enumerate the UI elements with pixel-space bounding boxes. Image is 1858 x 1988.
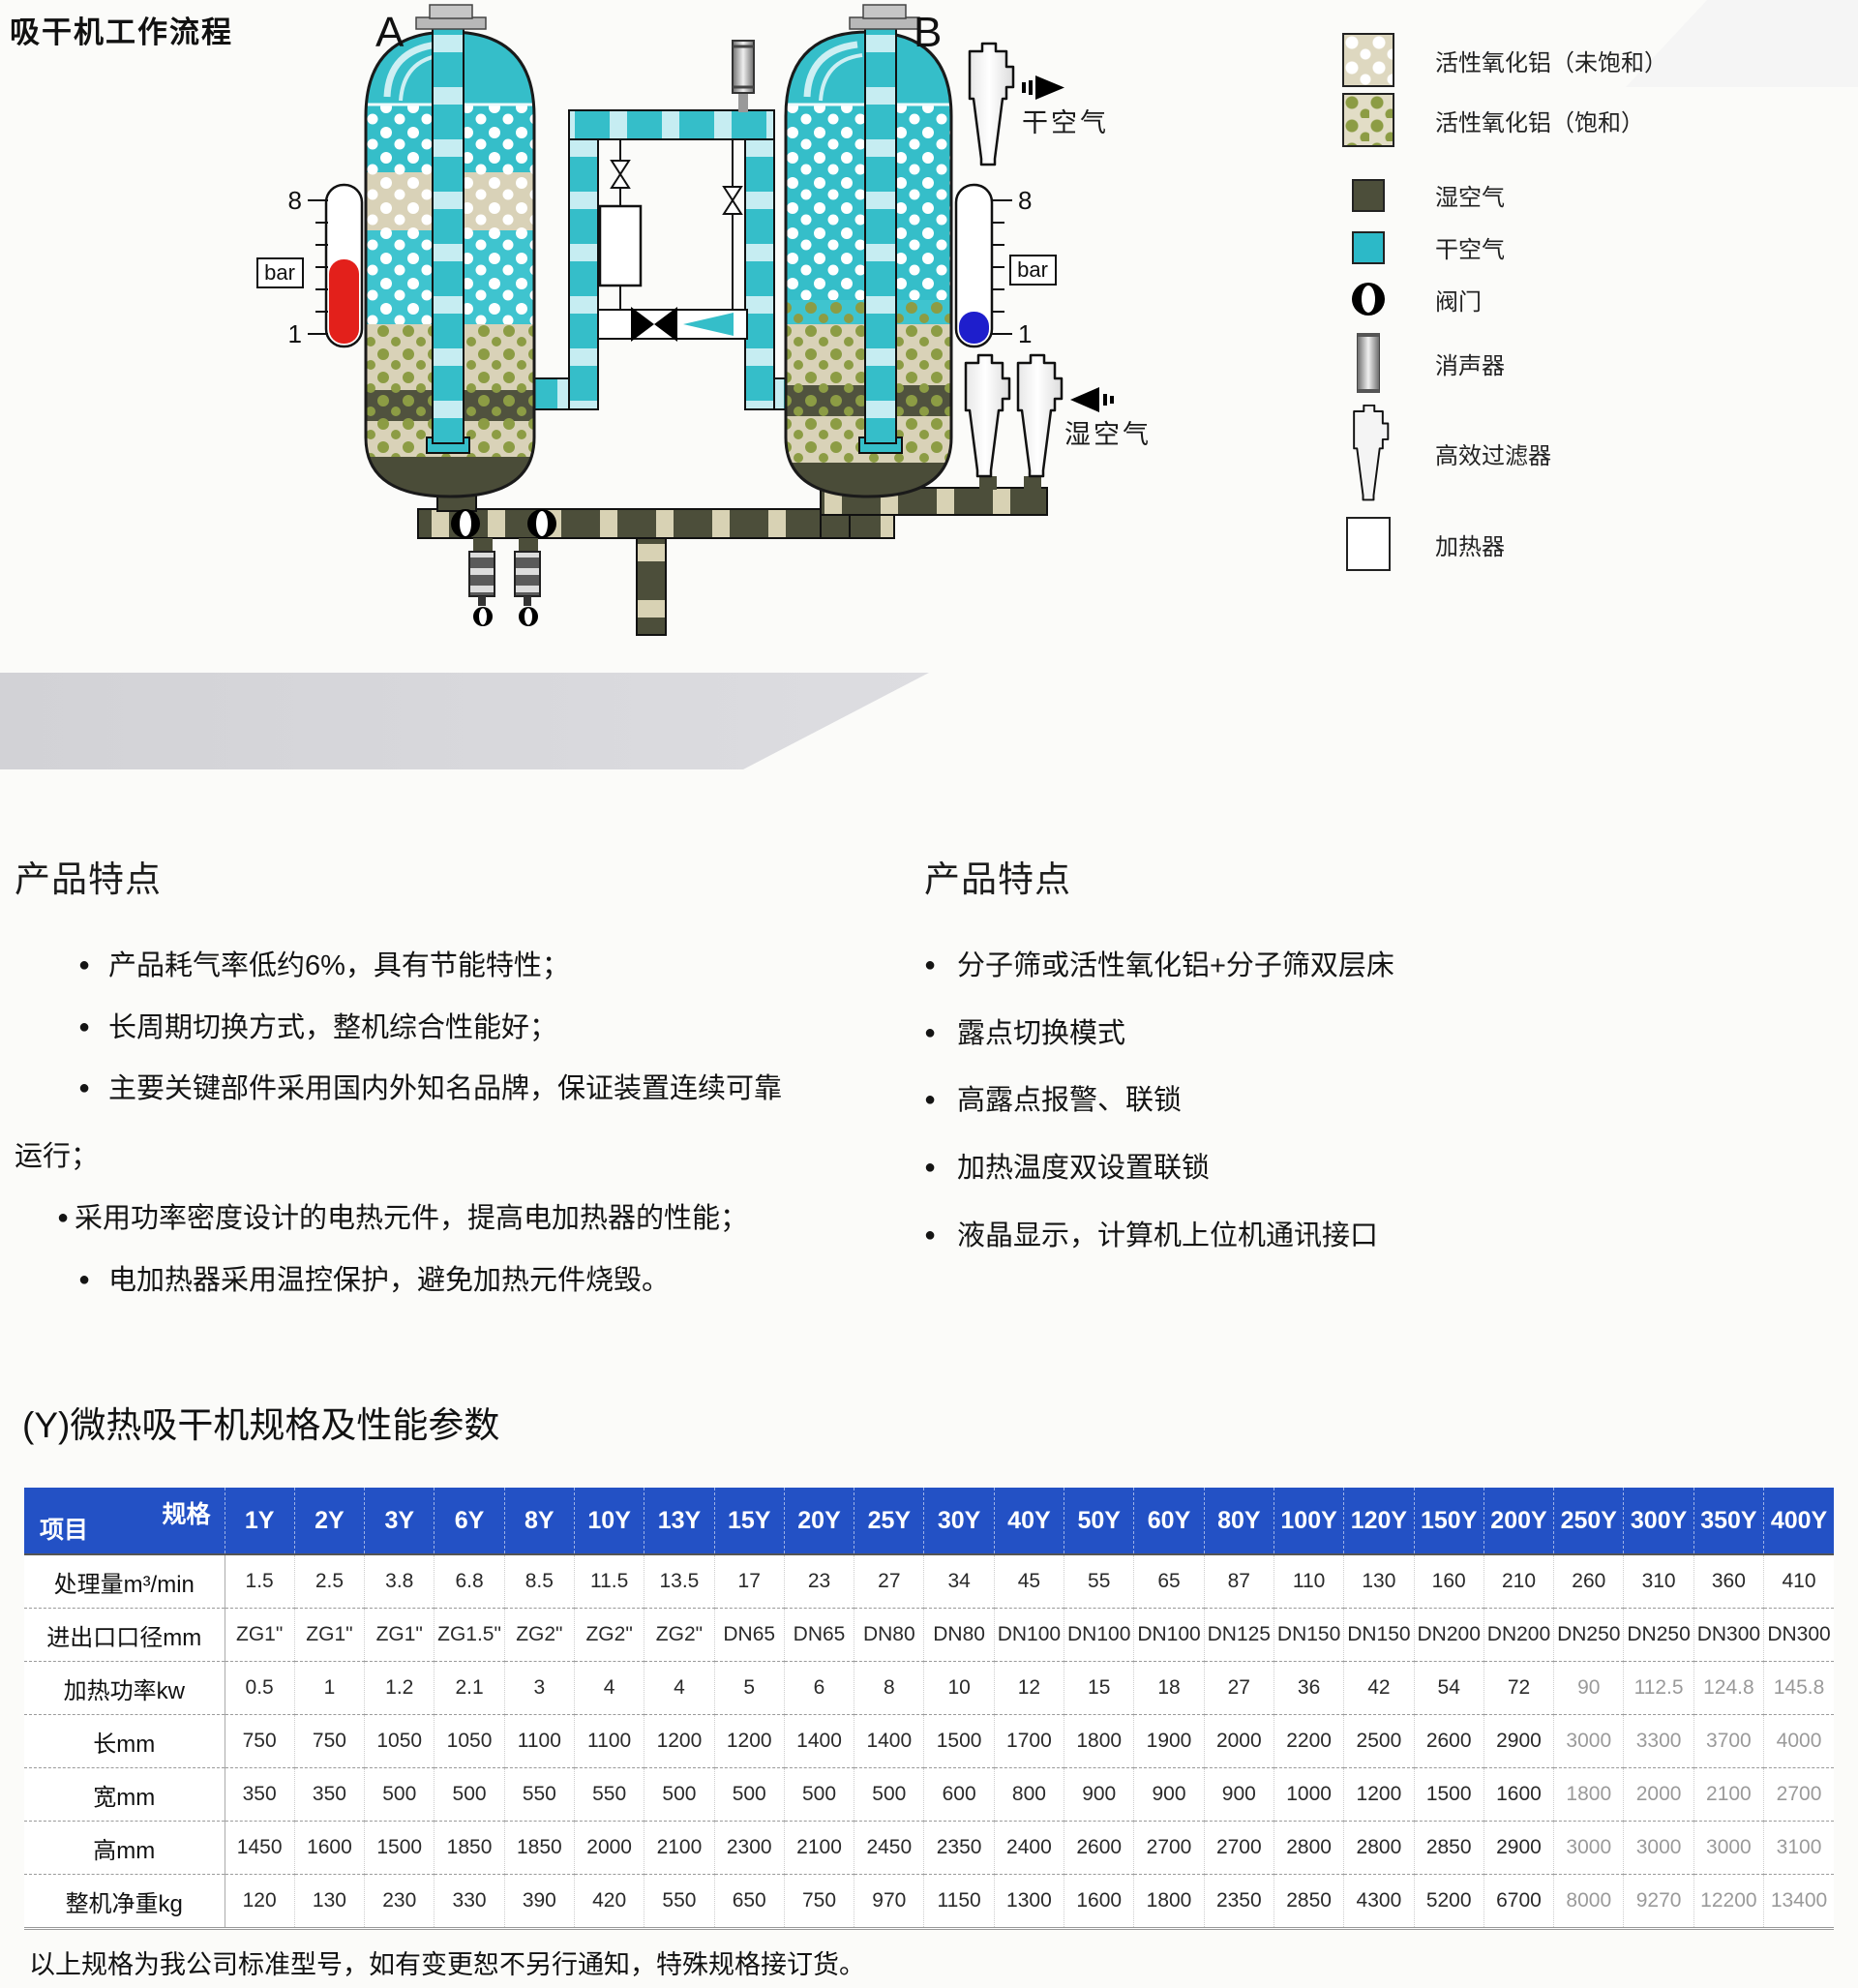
table-cell: 550 [644, 1875, 714, 1929]
muffler-icon [1357, 333, 1380, 393]
table-cell: 1200 [714, 1715, 784, 1768]
table-cell: 900 [1204, 1768, 1274, 1822]
table-cell: 3100 [1764, 1822, 1834, 1875]
table-cell: 17 [714, 1554, 784, 1609]
table-cell: ZG1" [294, 1609, 364, 1662]
table-cell: DN200 [1483, 1609, 1553, 1662]
table-cell: 2900 [1483, 1715, 1553, 1768]
table-row: 整机净重kg1201302303303904205506507509701150… [24, 1875, 1834, 1929]
filter-icon [1347, 405, 1390, 501]
table-row: 进出口口径mmZG1"ZG1"ZG1"ZG1.5"ZG2"ZG2"ZG2"DN6… [24, 1609, 1834, 1662]
table-cell: 500 [644, 1768, 714, 1822]
bullet-icon: ● [57, 1205, 69, 1230]
column-header: 8Y [504, 1488, 574, 1554]
feature-text: 主要关键部件采用国内外知名品牌，保证装置连续可靠 [108, 1073, 782, 1104]
page: 吸干机工作流程 [0, 0, 1858, 1988]
valve-icon [1349, 281, 1388, 317]
table-cell: 550 [574, 1768, 644, 1822]
table-cell: 900 [1064, 1768, 1134, 1822]
table-cell: 350 [225, 1768, 294, 1822]
column-header: 150Y [1414, 1488, 1483, 1554]
column-header: 3Y [365, 1488, 435, 1554]
table-cell: 2800 [1274, 1822, 1343, 1875]
bullet-icon: ● [78, 1014, 90, 1039]
feature-text: 采用功率密度设计的电热元件，提高电加热器的性能； [75, 1203, 748, 1234]
decor-band-diagonal [0, 673, 929, 769]
table-cell: 800 [994, 1768, 1064, 1822]
table-cell: 2800 [1344, 1822, 1414, 1875]
table-cell: 55 [1064, 1554, 1134, 1609]
column-header: 200Y [1483, 1488, 1553, 1554]
table-cell: 1500 [924, 1715, 994, 1768]
corner-item-label: 项目 [40, 1511, 88, 1546]
legend-item: 活性氧化铝（饱和） [1340, 93, 1644, 147]
feature-text: 产品耗气率低约6%，具有节能特性； [108, 950, 570, 981]
table-cell: 6 [784, 1662, 854, 1715]
table-cell: 145.8 [1764, 1662, 1834, 1715]
table-cell: ZG1" [365, 1609, 435, 1662]
dry-air-swatch-icon [1352, 231, 1385, 264]
table-cell: DN80 [924, 1609, 994, 1662]
row-label: 进出口口径mm [24, 1609, 225, 1662]
table-cell: 1500 [1414, 1768, 1483, 1822]
table-cell: 750 [784, 1875, 854, 1929]
table-cell: 6.8 [435, 1554, 504, 1609]
heater-icon [1346, 517, 1391, 571]
table-cell: 11.5 [574, 1554, 644, 1609]
features-heading: 产品特点 [15, 850, 885, 902]
vessel-a [362, 5, 540, 501]
table-cell: DN250 [1554, 1609, 1624, 1662]
table-cell: 500 [784, 1768, 854, 1822]
feature-item: ●液晶显示，计算机上位机通讯接口 [924, 1219, 1524, 1255]
table-cell: 1900 [1134, 1715, 1204, 1768]
features-section-left: 产品特点 ●产品耗气率低约6%，具有节能特性；●长周期切换方式，整机综合性能好；… [15, 850, 885, 1324]
dry-air-arrow-icon [1022, 75, 1064, 100]
legend-item: 阀门 [1340, 281, 1482, 317]
table-cell: 750 [225, 1715, 294, 1768]
vessel-b-label: B [914, 9, 942, 56]
table-cell: 2850 [1274, 1875, 1343, 1929]
table-cell: 1800 [1064, 1715, 1134, 1768]
table-cell: DN300 [1764, 1609, 1834, 1662]
features-heading: 产品特点 [924, 850, 1524, 902]
table-cell: 36 [1274, 1662, 1343, 1715]
diagram-legend: 活性氧化铝（未饱和）活性氧化铝（饱和）湿空气干空气阀门消声器高效过滤器加热器 [1340, 0, 1785, 629]
table-cell: 87 [1204, 1554, 1274, 1609]
table-cell: 230 [365, 1875, 435, 1929]
table-cell: 650 [714, 1875, 784, 1929]
table-cell: 4 [644, 1662, 714, 1715]
table-cell: 1700 [994, 1715, 1064, 1768]
table-cell: 900 [1134, 1768, 1204, 1822]
table-row: 高mm1450160015001850185020002100230021002… [24, 1822, 1834, 1875]
feature-item: ●主要关键部件采用国内外知名品牌，保证装置连续可靠 [15, 1071, 885, 1108]
table-cell: 2700 [1764, 1768, 1834, 1822]
table-cell: DN80 [854, 1609, 924, 1662]
table-cell: 390 [504, 1875, 574, 1929]
feature-text: 分子筛或活性氧化铝+分子筛双层床 [957, 950, 1394, 981]
table-cell: 2700 [1134, 1822, 1204, 1875]
table-cell: 2.1 [435, 1662, 504, 1715]
table-cell: DN100 [1064, 1609, 1134, 1662]
bullet-icon: ● [78, 952, 90, 978]
table-cell: 2450 [854, 1822, 924, 1875]
table-cell: 1600 [1064, 1875, 1134, 1929]
table-cell: 8000 [1554, 1875, 1624, 1929]
spec-table-footnote: 以上规格为我公司标准型号，如有变更恕不另行通知，特殊规格接订货。 [29, 1943, 865, 1981]
column-header: 400Y [1764, 1488, 1834, 1554]
legend-item: 干空气 [1340, 230, 1505, 264]
table-cell: DN125 [1204, 1609, 1274, 1662]
feature-continuation: 运行； [15, 1133, 885, 1174]
wet-air-swatch-icon [1352, 179, 1385, 212]
table-cell: 750 [294, 1715, 364, 1768]
feature-text: 露点切换模式 [957, 1018, 1125, 1049]
column-header: 100Y [1274, 1488, 1343, 1554]
column-header: 60Y [1134, 1488, 1204, 1554]
features-list: ●产品耗气率低约6%，具有节能特性；●长周期切换方式，整机综合性能好；●主要关键… [15, 949, 885, 1299]
table-cell: DN200 [1414, 1609, 1483, 1662]
legend-label: 高效过滤器 [1435, 437, 1551, 470]
table-cell: 27 [854, 1554, 924, 1609]
table-row: 处理量m³/min1.52.53.86.88.511.513.517232734… [24, 1554, 1834, 1609]
table-cell: 1300 [994, 1875, 1064, 1929]
features-list: ●分子筛或活性氧化铝+分子筛双层床●露点切换模式●高露点报警、联锁●加热温度双设… [924, 949, 1524, 1254]
bullet-icon: ● [78, 1075, 90, 1100]
table-cell: 2900 [1483, 1822, 1553, 1875]
table-cell: 1850 [504, 1822, 574, 1875]
svg-text:1: 1 [288, 319, 302, 348]
legend-label: 阀门 [1435, 283, 1482, 316]
column-header: 40Y [994, 1488, 1064, 1554]
table-cell: 1800 [1554, 1768, 1624, 1822]
table-cell: 160 [1414, 1554, 1483, 1609]
feature-text: 加热温度双设置联锁 [957, 1153, 1210, 1184]
column-header: 350Y [1693, 1488, 1763, 1554]
table-cell: 2000 [1204, 1715, 1274, 1768]
table-cell: 5 [714, 1662, 784, 1715]
table-cell: DN65 [714, 1609, 784, 1662]
bullet-icon: ● [924, 1087, 936, 1112]
table-cell: 13.5 [644, 1554, 714, 1609]
table-cell: 2600 [1064, 1822, 1134, 1875]
table-cell: 23 [784, 1554, 854, 1609]
pressure-gauge-left: 8 1 bar [257, 185, 362, 348]
filter-icon [1018, 355, 1062, 476]
table-cell: 210 [1483, 1554, 1553, 1609]
vessel-b [782, 5, 956, 501]
table-cell: 124.8 [1693, 1662, 1763, 1715]
table-cell: 2000 [1624, 1768, 1693, 1822]
table-cell: 112.5 [1624, 1662, 1693, 1715]
svg-text:bar: bar [1017, 257, 1048, 282]
features-section-right: 产品特点 ●分子筛或活性氧化铝+分子筛双层床●露点切换模式●高露点报警、联锁●加… [924, 850, 1524, 1285]
column-header: 300Y [1624, 1488, 1693, 1554]
table-cell: 72 [1483, 1662, 1553, 1715]
table-cell: 34 [924, 1554, 994, 1609]
table-cell: 1000 [1274, 1768, 1343, 1822]
legend-item: 加热器 [1340, 517, 1505, 571]
feature-item: ●产品耗气率低约6%，具有节能特性； [15, 949, 885, 985]
table-cell: 15 [1064, 1662, 1134, 1715]
row-label: 加热功率kw [24, 1662, 225, 1715]
table-cell: 1200 [644, 1715, 714, 1768]
legend-label: 湿空气 [1435, 178, 1505, 212]
bullet-icon: ● [924, 1020, 936, 1045]
table-cell: 3700 [1693, 1715, 1763, 1768]
alumina-saturated-icon [1342, 93, 1394, 147]
table-cell: DN150 [1344, 1609, 1414, 1662]
column-header: 1Y [225, 1488, 294, 1554]
table-cell: 1500 [365, 1822, 435, 1875]
table-cell: 3000 [1554, 1715, 1624, 1768]
table-cell: 1 [294, 1662, 364, 1715]
row-label: 高mm [24, 1822, 225, 1875]
table-cell: 410 [1764, 1554, 1834, 1609]
feature-item: ●电加热器采用温控保护，避免加热元件烧毁。 [15, 1263, 885, 1300]
table-cell: DN250 [1624, 1609, 1693, 1662]
table-cell: 8 [854, 1662, 924, 1715]
legend-item: 消声器 [1340, 333, 1505, 393]
table-cell: 970 [854, 1875, 924, 1929]
table-cell: 2850 [1414, 1822, 1483, 1875]
table-cell: 2100 [784, 1822, 854, 1875]
table-cell: 2500 [1344, 1715, 1414, 1768]
table-cell: 550 [504, 1768, 574, 1822]
table-cell: 310 [1624, 1554, 1693, 1609]
feature-text: 高露点报警、联锁 [957, 1085, 1182, 1116]
table-cell: 3300 [1624, 1715, 1693, 1768]
table-cell: 65 [1134, 1554, 1204, 1609]
table-cell: 8.5 [504, 1554, 574, 1609]
vessel-a-label: A [375, 9, 405, 56]
table-cell: 330 [435, 1875, 504, 1929]
bullet-icon: ● [924, 1155, 936, 1180]
table-row: 加热功率kw0.511.22.1344568101215182736425472… [24, 1662, 1834, 1715]
table-cell: 10 [924, 1662, 994, 1715]
table-cell: 1.2 [365, 1662, 435, 1715]
svg-text:8: 8 [1018, 186, 1032, 215]
table-cell: 3000 [1554, 1822, 1624, 1875]
table-cell: 2600 [1414, 1715, 1483, 1768]
feature-text: 长周期切换方式，整机综合性能好； [108, 1012, 557, 1043]
table-cell: 9270 [1624, 1875, 1693, 1929]
wet-air-piping [418, 476, 1047, 635]
spec-table-title: (Y)微热吸干机规格及性能参数 [22, 1396, 499, 1448]
feature-item: ●加热温度双设置联锁 [924, 1151, 1524, 1188]
table-cell: DN100 [1134, 1609, 1204, 1662]
filter-icon [966, 355, 1009, 476]
table-cell: 1.5 [225, 1554, 294, 1609]
table-cell: 500 [854, 1768, 924, 1822]
table-cell: 3000 [1624, 1822, 1693, 1875]
column-header: 30Y [924, 1488, 994, 1554]
corner-spec-label: 规格 [162, 1495, 210, 1530]
feature-item: ●长周期切换方式，整机综合性能好； [15, 1010, 885, 1047]
spec-table-header-row: 规格项目1Y2Y3Y6Y8Y10Y13Y15Y20Y25Y30Y40Y50Y60… [24, 1488, 1834, 1554]
table-cell: 1400 [854, 1715, 924, 1768]
table-cell: 42 [1344, 1662, 1414, 1715]
table-cell: 500 [714, 1768, 784, 1822]
feature-text: 液晶显示，计算机上位机通讯接口 [957, 1220, 1378, 1251]
table-cell: 2100 [1693, 1768, 1763, 1822]
table-cell: DN100 [994, 1609, 1064, 1662]
muffler-icon [733, 41, 754, 112]
corner-cell: 规格项目 [24, 1488, 225, 1554]
table-cell: 2.5 [294, 1554, 364, 1609]
table-cell: 2100 [644, 1822, 714, 1875]
table-cell: 4 [574, 1662, 644, 1715]
svg-text:1: 1 [1018, 319, 1032, 348]
table-cell: 54 [1414, 1662, 1483, 1715]
table-cell: 360 [1693, 1554, 1763, 1609]
column-header: 120Y [1344, 1488, 1414, 1554]
column-header: 10Y [574, 1488, 644, 1554]
table-cell: 1100 [504, 1715, 574, 1768]
bullet-icon: ● [924, 952, 936, 978]
row-label: 宽mm [24, 1768, 225, 1822]
table-cell: 18 [1134, 1662, 1204, 1715]
table-cell: DN300 [1693, 1609, 1763, 1662]
table-cell: 90 [1554, 1662, 1624, 1715]
filter-icon [970, 44, 1013, 165]
table-cell: 1200 [1344, 1768, 1414, 1822]
table-cell: 4300 [1344, 1875, 1414, 1929]
column-header: 15Y [714, 1488, 784, 1554]
svg-text:8: 8 [288, 186, 302, 215]
table-cell: 1050 [435, 1715, 504, 1768]
legend-item: 湿空气 [1340, 178, 1505, 212]
table-cell: DN150 [1274, 1609, 1343, 1662]
column-header: 80Y [1204, 1488, 1274, 1554]
alumina-unsaturated-icon [1342, 33, 1394, 87]
table-cell: 1100 [574, 1715, 644, 1768]
column-header: 25Y [854, 1488, 924, 1554]
table-cell: DN65 [784, 1609, 854, 1662]
table-cell: 130 [294, 1875, 364, 1929]
dry-air-label: 干空气 [1022, 108, 1109, 137]
table-cell: 12200 [1693, 1875, 1763, 1929]
column-header: 50Y [1064, 1488, 1134, 1554]
table-cell: 2700 [1204, 1822, 1274, 1875]
feature-item: ●高露点报警、联锁 [924, 1083, 1524, 1120]
table-cell: 6700 [1483, 1875, 1553, 1929]
legend-label: 活性氧化铝（饱和） [1435, 104, 1644, 137]
table-cell: ZG1.5" [435, 1609, 504, 1662]
feature-item: ●分子筛或活性氧化铝+分子筛双层床 [924, 949, 1524, 985]
legend-item: 活性氧化铝（未饱和） [1340, 33, 1667, 87]
table-cell: 1150 [924, 1875, 994, 1929]
table-cell: 1800 [1134, 1875, 1204, 1929]
column-header: 20Y [784, 1488, 854, 1554]
pressure-gauge-right: 8 1 bar [956, 185, 1056, 348]
table-cell: ZG1" [225, 1609, 294, 1662]
table-cell: 27 [1204, 1662, 1274, 1715]
table-cell: 130 [1344, 1554, 1414, 1609]
table-cell: 1450 [225, 1822, 294, 1875]
table-cell: 1600 [1483, 1768, 1553, 1822]
table-cell: 3 [504, 1662, 574, 1715]
column-header: 250Y [1554, 1488, 1624, 1554]
muffler-icon [469, 552, 540, 606]
table-cell: 12 [994, 1662, 1064, 1715]
row-label: 长mm [24, 1715, 225, 1768]
table-cell: ZG2" [504, 1609, 574, 1662]
table-cell: 600 [924, 1768, 994, 1822]
wet-air-arrow-icon [1070, 387, 1114, 412]
table-cell: ZG2" [574, 1609, 644, 1662]
table-cell: 3000 [1693, 1822, 1763, 1875]
table-cell: 45 [994, 1554, 1064, 1609]
table-cell: 2200 [1274, 1715, 1343, 1768]
table-row: 长mm7507501050105011001100120012001400140… [24, 1715, 1834, 1768]
feature-item: ●露点切换模式 [924, 1016, 1524, 1053]
table-cell: 13400 [1764, 1875, 1834, 1929]
feature-text: 电加热器采用温控保护，避免加热元件烧毁。 [108, 1265, 670, 1296]
legend-item: 高效过滤器 [1340, 405, 1551, 501]
legend-label: 活性氧化铝（未饱和） [1435, 44, 1667, 77]
table-cell: 2350 [1204, 1875, 1274, 1929]
table-cell: 2350 [924, 1822, 994, 1875]
legend-label: 消声器 [1435, 346, 1505, 380]
table-cell: 1600 [294, 1822, 364, 1875]
table-cell: 110 [1274, 1554, 1343, 1609]
table-cell: 2300 [714, 1822, 784, 1875]
wet-air-label: 湿空气 [1064, 420, 1152, 449]
table-cell: 0.5 [225, 1662, 294, 1715]
spec-table: 规格项目1Y2Y3Y6Y8Y10Y13Y15Y20Y25Y30Y40Y50Y60… [24, 1488, 1834, 1930]
dry-air-piping [523, 110, 801, 409]
table-cell: 5200 [1414, 1875, 1483, 1929]
table-cell: 420 [574, 1875, 644, 1929]
table-cell: 2000 [574, 1822, 644, 1875]
heater-icon [600, 206, 641, 286]
feature-item: ●采用功率密度设计的电热元件，提高电加热器的性能； [15, 1201, 885, 1238]
row-label: 整机净重kg [24, 1875, 225, 1929]
bullet-icon: ● [78, 1267, 90, 1292]
table-cell: 1850 [435, 1822, 504, 1875]
table-cell: 350 [294, 1768, 364, 1822]
column-header: 2Y [294, 1488, 364, 1554]
switch-valve [598, 307, 747, 342]
table-cell: 120 [225, 1875, 294, 1929]
table-cell: ZG2" [644, 1609, 714, 1662]
column-header: 13Y [644, 1488, 714, 1554]
row-label: 处理量m³/min [24, 1554, 225, 1609]
column-header: 6Y [435, 1488, 504, 1554]
table-row: 宽mm3503505005005505505005005005006008009… [24, 1768, 1834, 1822]
table-cell: 3.8 [365, 1554, 435, 1609]
svg-text:bar: bar [264, 260, 295, 285]
table-cell: 1050 [365, 1715, 435, 1768]
table-cell: 500 [365, 1768, 435, 1822]
table-cell: 500 [435, 1768, 504, 1822]
bullet-icon: ● [924, 1222, 936, 1248]
table-cell: 1400 [784, 1715, 854, 1768]
table-cell: 4000 [1764, 1715, 1834, 1768]
legend-label: 干空气 [1435, 230, 1505, 264]
table-cell: 2400 [994, 1822, 1064, 1875]
process-flow-diagram: 8 1 bar 8 1 bar [0, 0, 1210, 650]
table-cell: 260 [1554, 1554, 1624, 1609]
legend-label: 加热器 [1435, 527, 1505, 561]
